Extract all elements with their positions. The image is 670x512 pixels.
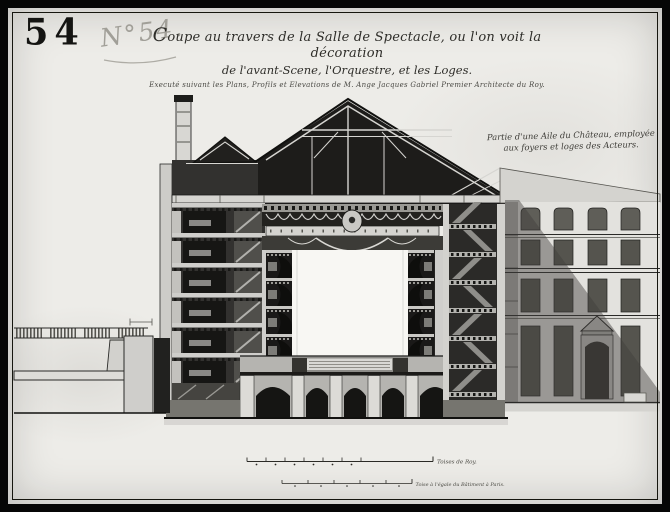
catalog-number-stencil: 54 [24,11,85,54]
wing-annotation: Partie d'une Aile du Château, employée a… [487,128,656,154]
scale-bar-paris-label: Toise à l'égale du Bâtiment à Paris. [416,481,506,488]
stage-opening [292,250,408,358]
plate-title: Coupe au travers de la Salle de Spectacl… [147,24,547,89]
tie-beam [172,195,505,203]
photographed-plate: Toises de Roy. Toise à l'égale du Bâtime… [0,0,670,512]
title-line-2: de l'avant-Scene, l'Orquestre, et les Lo… [147,63,547,77]
scale-bar-toises: Toises de Roy. [247,457,477,466]
scale-bar-toises-label: Toises de Roy. [437,460,477,466]
proscenium-frieze [262,204,443,251]
title-line-1: Coupe au travers de la Salle de Spectacl… [147,24,547,61]
loges-right [408,250,443,362]
chateau-wing-facade [500,168,660,412]
terrace-section [14,319,170,414]
loges-left [262,250,292,362]
scale-bar-paris: Toise à l'égale du Bâtiment à Paris. [282,479,505,488]
title-line-3: Executé suivant les Plans, Profils et El… [147,81,547,89]
stair-tower-section [443,202,505,400]
basement-arcade [240,356,470,418]
roof-truss-section [255,99,507,206]
